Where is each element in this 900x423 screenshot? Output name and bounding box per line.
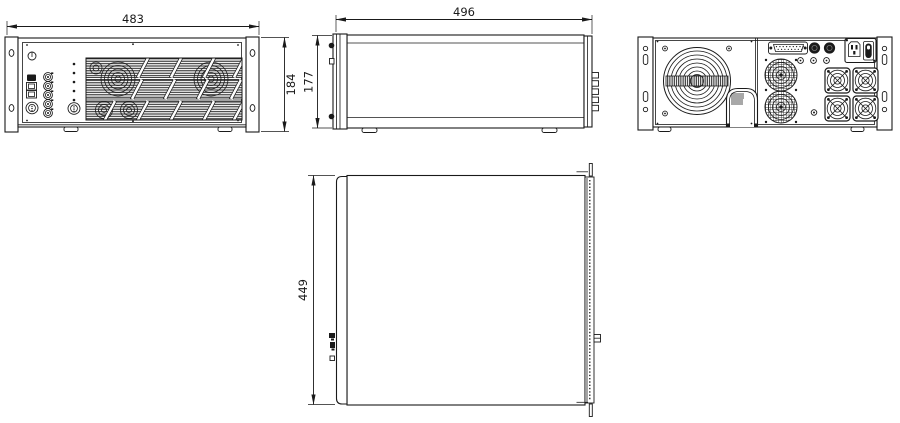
side-view: 496 177	[302, 5, 599, 133]
rack-ear-tab-top	[589, 164, 592, 177]
drawing-canvas: 483 184	[0, 0, 900, 423]
mounting-slot	[882, 55, 887, 65]
mounting-hole	[250, 50, 255, 57]
top-depth-value: 449	[296, 279, 310, 301]
foot	[218, 127, 232, 132]
front-width-value: 483	[122, 12, 144, 26]
power-button	[28, 52, 36, 60]
round-fan-grille	[765, 59, 797, 91]
foot	[658, 127, 671, 132]
dimension-side-height: 177	[302, 36, 333, 129]
rear-flange	[337, 177, 348, 405]
side-height-value: 177	[302, 71, 316, 93]
foot	[542, 128, 557, 133]
square-fan-grille	[853, 96, 878, 121]
mounting-hole	[882, 46, 886, 50]
mounting-hole	[9, 50, 14, 57]
square-fan-grille	[825, 68, 850, 93]
dsub-connector	[26, 102, 38, 114]
foot	[64, 127, 78, 132]
rear-connector-tops	[329, 333, 335, 361]
chassis-dimension-drawing: 483 184	[0, 0, 900, 423]
bnc-connector-column	[44, 72, 54, 117]
cable-gland-module	[727, 89, 758, 128]
mounting-slot	[882, 92, 887, 102]
dimension-front-width: 483	[7, 12, 259, 35]
dimension-top-depth: 449	[296, 176, 335, 405]
side-depth-value: 496	[453, 5, 475, 19]
mounting-hole	[9, 105, 14, 112]
rear-connector-tabs	[592, 73, 599, 111]
foot	[851, 127, 864, 132]
square-fan-grille	[853, 68, 878, 93]
front-knob	[329, 43, 335, 49]
fan-hub-label	[666, 76, 728, 86]
foot	[362, 128, 377, 133]
side-body	[347, 35, 584, 128]
front-vent-grille	[86, 58, 246, 120]
usb-port	[27, 75, 36, 82]
rack-ear-tab-bottom	[589, 404, 592, 417]
dimension-side-depth: 496	[336, 5, 592, 34]
square-fan-grille	[825, 96, 850, 121]
power-inlet-module	[845, 39, 876, 63]
mounting-hole	[643, 107, 647, 111]
small-jacks	[798, 58, 830, 64]
front-view: 483 184	[5, 12, 298, 132]
mounting-slot	[643, 92, 648, 102]
mounting-hole	[250, 105, 255, 112]
mounting-hole	[882, 107, 886, 111]
top-cover	[347, 176, 585, 406]
top-view: 449	[296, 164, 601, 417]
mounting-slot	[643, 55, 648, 65]
front-height-value: 184	[284, 74, 298, 96]
dsub-connector	[68, 103, 80, 115]
front-connector-edge	[330, 59, 335, 65]
front-knob	[329, 114, 335, 120]
mounting-hole	[643, 46, 647, 50]
dimension-front-height: 184	[261, 38, 298, 132]
round-fan-grille	[765, 91, 797, 123]
rear-panel-edge	[584, 36, 592, 127]
rear-view	[638, 37, 892, 132]
db25-connector	[769, 42, 808, 54]
